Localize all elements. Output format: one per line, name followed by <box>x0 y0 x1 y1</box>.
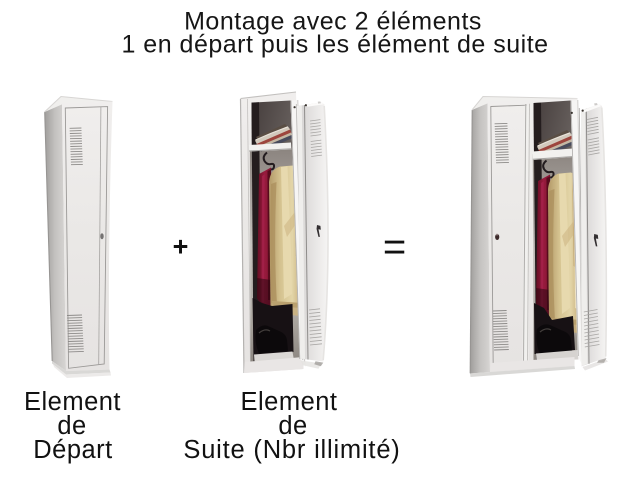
svg-text:+: + <box>173 232 189 262</box>
svg-text:Départ: Départ <box>33 436 113 464</box>
svg-text:Suite (Nbr illimité): Suite (Nbr illimité) <box>183 436 400 464</box>
svg-text:=: = <box>383 225 406 269</box>
svg-text:1 en départ puis les élément d: 1 en départ puis les élément de suite <box>121 31 548 59</box>
